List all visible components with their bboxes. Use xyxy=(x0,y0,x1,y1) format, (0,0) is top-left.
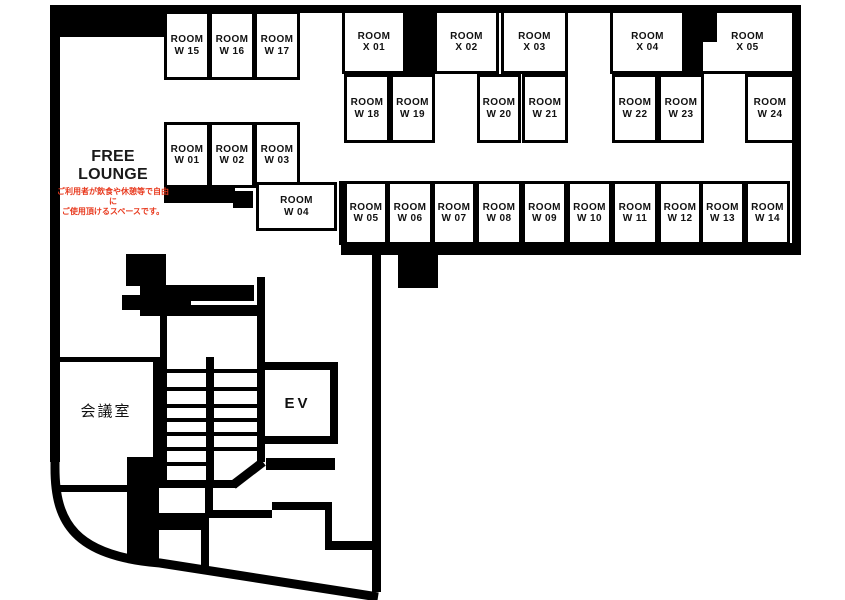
stair-tread xyxy=(167,432,206,436)
free-lounge-area: FREE LOUNGE ご利用者が飲食や休憩等で自由に ご使用頂けるスペースです… xyxy=(56,148,170,217)
wall xyxy=(258,362,338,370)
wall xyxy=(188,285,254,301)
room-label-line2: W 23 xyxy=(669,109,694,120)
room-label-line1: ROOM xyxy=(394,202,427,213)
room-label-line1: ROOM xyxy=(529,97,562,108)
room-label-line2: W 19 xyxy=(400,109,425,120)
room-label-line2: W 21 xyxy=(533,109,558,120)
room-label-line1: ROOM xyxy=(573,202,606,213)
stair-tread xyxy=(167,387,206,391)
room-label-line1: ROOM xyxy=(358,31,391,42)
room-label-line1: ROOM xyxy=(528,202,561,213)
room-x04: ROOMX 04 xyxy=(610,10,685,74)
room-w21: ROOMW 21 xyxy=(522,74,568,143)
stair-tread xyxy=(167,462,206,466)
room-label-line2: W 03 xyxy=(265,155,290,166)
room-label-line2: W 02 xyxy=(220,155,245,166)
room-label-line2: W 17 xyxy=(265,46,290,57)
room-label-line2: X 03 xyxy=(523,42,545,53)
room-label-line1: ROOM xyxy=(438,202,471,213)
room-label-line2: W 04 xyxy=(284,207,309,218)
room-label-line1: ROOM xyxy=(754,97,787,108)
wall xyxy=(398,252,438,288)
wall xyxy=(325,541,374,550)
room-label-line1: ROOM xyxy=(483,202,516,213)
room-label-line1: ROOM xyxy=(396,97,429,108)
room-w19: ROOMW 19 xyxy=(390,74,435,143)
room-w02: ROOMW 02 xyxy=(209,122,255,188)
room-label-line1: ROOM xyxy=(171,34,204,45)
wall xyxy=(266,458,335,470)
stair-tread xyxy=(167,404,206,408)
room-label-line2: W 18 xyxy=(355,109,380,120)
room-w09: ROOMW 09 xyxy=(522,181,567,245)
room-label-line1: ROOM xyxy=(665,97,698,108)
room-label-line2: W 08 xyxy=(487,213,512,224)
free-lounge-note-line2: ご使用頂けるスペースです。 xyxy=(56,207,170,217)
room-w08: ROOMW 08 xyxy=(476,181,522,245)
stair-tread xyxy=(167,447,206,451)
room-label-line2: X 04 xyxy=(636,42,658,53)
room-w24: ROOMW 24 xyxy=(745,74,795,143)
room-label-line1: ROOM xyxy=(350,202,383,213)
room-label-line2: W 10 xyxy=(577,213,602,224)
room-w15: ROOMW 15 xyxy=(164,11,210,80)
room-label-line2: W 24 xyxy=(758,109,783,120)
stair-tread xyxy=(214,418,257,422)
room-w12: ROOMW 12 xyxy=(658,181,702,245)
room-label-line1: ROOM xyxy=(261,144,294,155)
stair-tread xyxy=(167,369,206,373)
wall xyxy=(50,5,167,37)
room-label-line1: ROOM xyxy=(216,34,249,45)
room-x01: ROOMX 01 xyxy=(342,10,406,74)
stair-chamfer-wall xyxy=(233,462,263,485)
room-w18: ROOMW 18 xyxy=(344,74,390,143)
room-w01: ROOMW 01 xyxy=(164,122,210,188)
room-label-line1: ROOM xyxy=(619,202,652,213)
room-x02: ROOMX 02 xyxy=(434,10,499,74)
room-w06: ROOMW 06 xyxy=(387,181,433,245)
room-w10: ROOMW 10 xyxy=(567,181,612,245)
stair-tread xyxy=(214,387,257,391)
room-w23: ROOMW 23 xyxy=(658,74,704,143)
room-label-line1: ROOM xyxy=(518,31,551,42)
room-x03: ROOMX 03 xyxy=(501,10,568,74)
room-label-line1: ROOM xyxy=(216,144,249,155)
room-label-line1: ROOM xyxy=(631,31,664,42)
room-label-line1: ROOM xyxy=(280,195,313,206)
wall xyxy=(50,8,60,462)
room-w11: ROOMW 11 xyxy=(612,181,658,245)
wall xyxy=(160,305,265,316)
stair-tread xyxy=(214,369,257,373)
wall xyxy=(201,530,209,570)
room-label-line2: W 16 xyxy=(220,46,245,57)
room-label-line1: ROOM xyxy=(351,97,384,108)
room-label-line1: ROOM xyxy=(619,97,652,108)
room-label-line2: W 01 xyxy=(175,155,200,166)
wall xyxy=(206,357,214,480)
wall xyxy=(56,485,129,492)
stair-tread xyxy=(214,404,257,408)
wall xyxy=(164,188,235,203)
wall xyxy=(122,295,140,310)
wall xyxy=(403,5,437,74)
room-label-line1: ROOM xyxy=(261,34,294,45)
room-w22: ROOMW 22 xyxy=(612,74,658,143)
room-label-line2: W 07 xyxy=(442,213,467,224)
floor-plan: ROOMW 15ROOMW 16ROOMW 17ROOMX 01ROOMX 02… xyxy=(0,0,845,600)
wall xyxy=(58,357,160,362)
room-label-line1: ROOM xyxy=(751,202,784,213)
room-label-line1: ROOM xyxy=(664,202,697,213)
stair-tread xyxy=(167,418,206,422)
wall xyxy=(153,357,167,488)
wall xyxy=(272,502,332,510)
room-w13: ROOMW 13 xyxy=(700,181,745,245)
wall xyxy=(258,436,338,444)
room-label-line1: ROOM xyxy=(483,97,516,108)
room-label-line1: ROOM xyxy=(171,144,204,155)
room-label-line2: W 05 xyxy=(354,213,379,224)
free-lounge-note: ご利用者が飲食や休憩等で自由に ご使用頂けるスペースです。 xyxy=(56,187,170,217)
room-label-line2: W 12 xyxy=(668,213,693,224)
wall xyxy=(126,254,166,286)
room-w03: ROOMW 03 xyxy=(254,122,300,188)
room-label-line2: W 06 xyxy=(398,213,423,224)
room-label-line2: W 15 xyxy=(175,46,200,57)
room-label-line2: W 22 xyxy=(623,109,648,120)
room-label-line1: ROOM xyxy=(731,31,764,42)
free-lounge-title: FREE LOUNGE xyxy=(56,148,170,184)
room-label-line2: W 09 xyxy=(532,213,557,224)
wall xyxy=(140,286,161,316)
room-w07: ROOMW 07 xyxy=(432,181,476,245)
free-lounge-note-line1: ご利用者が飲食や休憩等で自由に xyxy=(56,187,170,207)
wall xyxy=(700,10,717,42)
room-label-line2: X 05 xyxy=(736,42,758,53)
room-label-line2: W 11 xyxy=(623,213,647,224)
room-w16: ROOMW 16 xyxy=(209,11,255,80)
elevator-label: EV xyxy=(265,370,330,436)
room-w14: ROOMW 14 xyxy=(745,181,790,245)
room-label-line2: X 01 xyxy=(363,42,385,53)
room-label-line1: ROOM xyxy=(706,202,739,213)
wall xyxy=(233,191,253,208)
room-w05: ROOMW 05 xyxy=(344,181,388,245)
room-label-line2: W 14 xyxy=(755,213,780,224)
room-w04: ROOMW 04 xyxy=(256,182,337,231)
wall xyxy=(159,513,209,530)
room-label-line1: ROOM xyxy=(450,31,483,42)
room-w20: ROOMW 20 xyxy=(477,74,521,143)
wall xyxy=(205,510,272,518)
meeting-room-label: 会議室 xyxy=(58,400,154,421)
room-label-line2: W 13 xyxy=(710,213,735,224)
wall xyxy=(330,362,338,444)
wall xyxy=(160,480,237,488)
stair-tread xyxy=(214,447,257,451)
room-label-line2: W 20 xyxy=(487,109,512,120)
room-w17: ROOMW 17 xyxy=(254,11,300,80)
stair-tread xyxy=(214,432,257,436)
room-label-line2: X 02 xyxy=(455,42,477,53)
